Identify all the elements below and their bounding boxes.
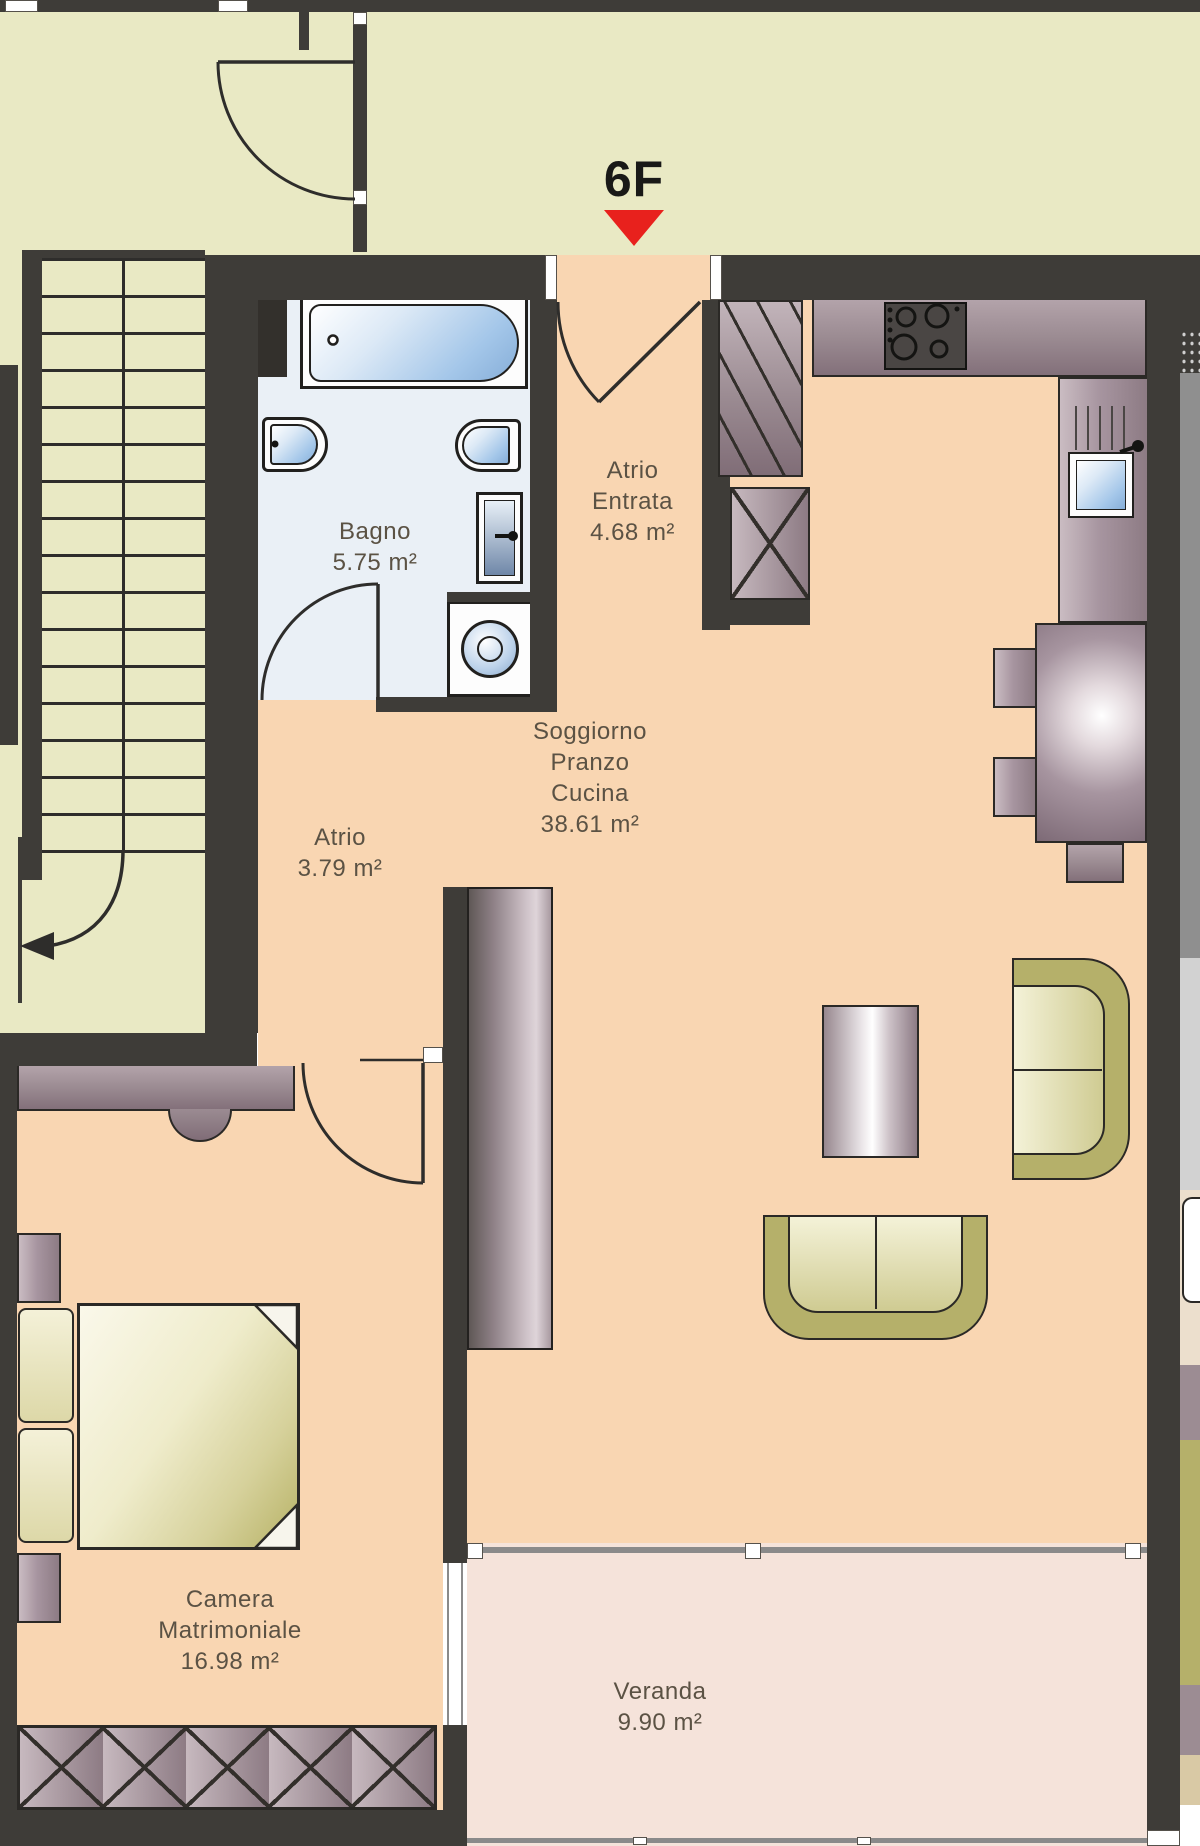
cooktop	[884, 302, 967, 370]
room-label-atrio-entrata: Atrio Entrata 4.68 m²	[545, 455, 720, 548]
pillow	[18, 1428, 74, 1543]
room-name: Cucina	[495, 778, 685, 809]
unit-label: 6F	[564, 150, 704, 208]
wall-segment	[353, 12, 367, 252]
wall-segment	[702, 300, 718, 477]
room-name: Soggiorno	[495, 716, 685, 747]
adjacent-floor	[1180, 958, 1200, 1190]
room-area: 38.61 m²	[495, 809, 685, 840]
wardrobe-section	[103, 1728, 188, 1807]
door-jamb	[710, 255, 722, 300]
sofa-cushion-divider	[875, 1217, 877, 1309]
kitchen-sink-basin	[1076, 460, 1126, 510]
nightstand	[17, 1233, 61, 1303]
wall-segment	[0, 1033, 257, 1066]
drainboard	[1075, 406, 1133, 450]
entry-cabinet	[730, 487, 810, 600]
wardrobe-section	[352, 1728, 434, 1807]
entry-wardrobe	[718, 300, 803, 477]
floor-plan: 6F Bagno 5.75 m² Atrio Entrata 4.68 m² A…	[0, 0, 1200, 1846]
window-post	[633, 1837, 647, 1845]
wall-segment	[299, 12, 309, 50]
wall-segment	[0, 1066, 17, 1846]
bedroom-wardrobe-row	[17, 1725, 437, 1810]
room-label-soggiorno: Soggiorno Pranzo Cucina 38.61 m²	[495, 716, 685, 840]
adjacent-fixture	[1182, 1197, 1200, 1303]
wall-segment	[0, 365, 18, 745]
window-gap	[218, 0, 248, 12]
room-label-bagno: Bagno 5.75 m²	[285, 516, 465, 578]
veranda-window-line	[467, 1547, 1147, 1553]
adjacent-furniture	[1180, 1365, 1200, 1440]
staircase-divider	[122, 258, 125, 850]
wardrobe-section	[20, 1728, 105, 1807]
door-jamb	[545, 255, 557, 300]
room-label-veranda: Veranda 9.90 m²	[560, 1676, 760, 1738]
pillow	[18, 1308, 74, 1423]
shower-tray	[484, 500, 515, 576]
window-post	[857, 1837, 871, 1845]
toilet-bowl	[270, 424, 318, 465]
double-bed	[77, 1303, 300, 1550]
wall-segment	[22, 250, 42, 880]
unit-label-text: 6F	[604, 151, 664, 207]
room-area: 5.75 m²	[285, 547, 465, 578]
wall-segment	[0, 1810, 443, 1846]
adjacent-unit-strip	[1180, 255, 1200, 1846]
wardrobe-section	[186, 1728, 271, 1807]
wall-segment	[376, 697, 557, 712]
dining-table	[1035, 623, 1147, 843]
duct-column	[258, 297, 287, 377]
adjacent-furniture	[1180, 1755, 1200, 1805]
window-post	[467, 1543, 483, 1559]
room-name: Entrata	[545, 486, 720, 517]
wardrobe-section	[269, 1728, 354, 1807]
bedroom-wardrobe-top	[17, 1066, 295, 1111]
dining-chair	[1066, 843, 1124, 883]
adjacent-floor	[1180, 373, 1200, 958]
dining-chair	[993, 757, 1037, 817]
corridor-floor	[0, 12, 1200, 255]
wall-segment	[718, 600, 810, 625]
coffee-table	[822, 1005, 919, 1158]
wall-segment	[42, 250, 205, 258]
bathtub-basin	[309, 304, 519, 382]
room-area: 3.79 m²	[250, 853, 430, 884]
room-area: 16.98 m²	[110, 1646, 350, 1677]
veranda-window-line	[467, 1838, 1147, 1843]
washing-machine-door	[477, 636, 503, 662]
room-name: Matrimoniale	[110, 1615, 350, 1646]
room-name: Camera	[110, 1584, 350, 1615]
sofa	[763, 1215, 988, 1340]
wall-segment	[0, 0, 1200, 12]
room-name: Pranzo	[495, 747, 685, 778]
room-name: Bagno	[285, 516, 465, 547]
wall-segment	[443, 887, 467, 1563]
veranda-side-window	[447, 1563, 463, 1725]
wall-segment	[1147, 255, 1180, 1830]
armchair-loveseat	[1012, 958, 1130, 1180]
adjacent-floor	[1180, 1805, 1200, 1846]
tall-cabinet	[467, 887, 553, 1350]
entrance-opening	[557, 255, 710, 300]
door-jamb	[353, 12, 367, 25]
wall-segment	[447, 592, 557, 602]
loveseat-cushion-divider	[1014, 1069, 1102, 1071]
door-jamb	[1147, 1830, 1180, 1846]
room-label-camera: Camera Matrimoniale 16.98 m²	[110, 1584, 350, 1677]
entrance-marker-icon	[604, 210, 664, 246]
door-jamb	[423, 1047, 443, 1063]
bidet-bowl	[462, 426, 510, 465]
adjacent-furniture	[1180, 1440, 1200, 1685]
room-name: Veranda	[560, 1676, 760, 1707]
window-post	[745, 1543, 761, 1559]
door-jamb	[353, 190, 367, 205]
window-gap	[5, 0, 38, 12]
adjacent-furniture	[1180, 1685, 1200, 1755]
wall-segment	[443, 1725, 467, 1846]
dining-chair	[993, 648, 1037, 708]
kitchen-counter-top	[812, 300, 1147, 377]
room-name: Atrio	[250, 822, 430, 853]
room-name: Atrio	[545, 455, 720, 486]
nightstand	[17, 1553, 61, 1623]
room-area: 9.90 m²	[560, 1707, 760, 1738]
wall-segment	[205, 300, 258, 1033]
window-post	[1125, 1543, 1141, 1559]
room-area: 4.68 m²	[545, 517, 720, 548]
room-label-atrio: Atrio 3.79 m²	[250, 822, 430, 884]
shaft-dots	[1180, 330, 1200, 373]
